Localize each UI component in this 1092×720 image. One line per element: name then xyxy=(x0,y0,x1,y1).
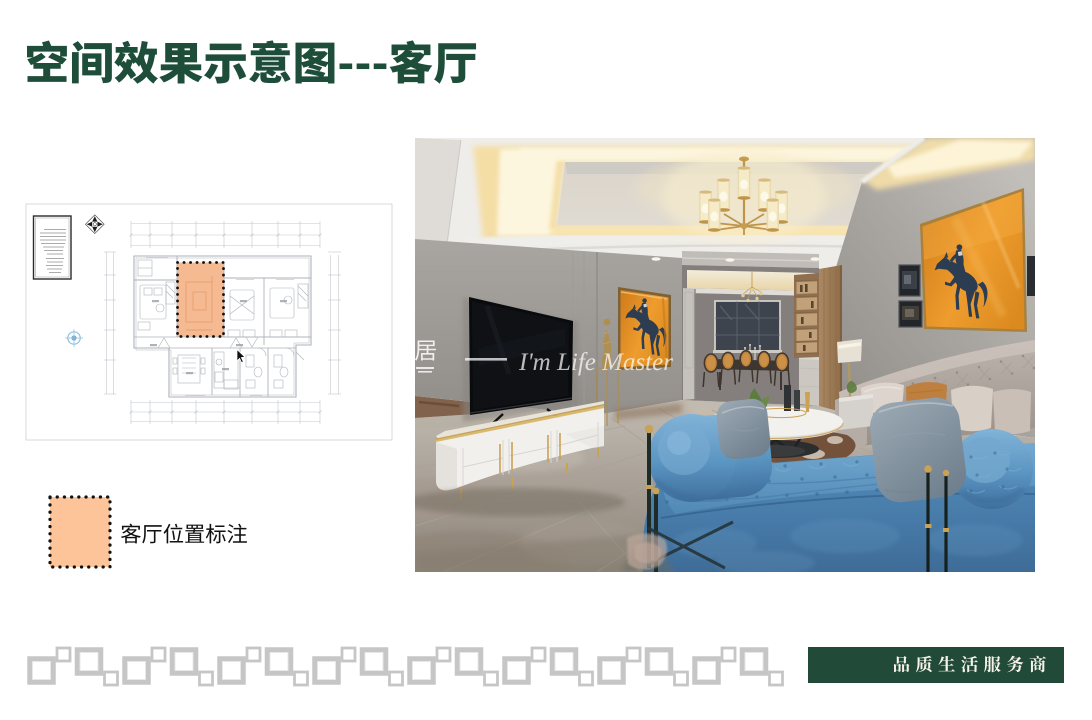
svg-text:I'm Life Master: I'm Life Master xyxy=(518,349,673,376)
